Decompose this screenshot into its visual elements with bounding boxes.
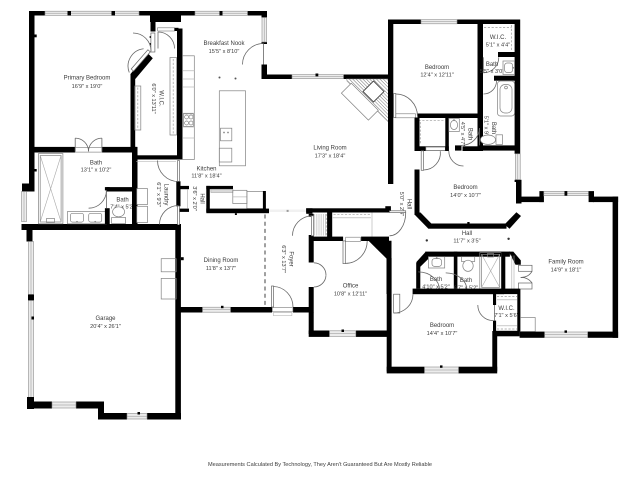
svg-text:Hall: Hall: [199, 193, 205, 203]
svg-text:6'0" x 13'11": 6'0" x 13'11": [150, 83, 156, 113]
svg-text:Living Room: Living Room: [313, 146, 346, 152]
svg-text:7'1" x 5'6": 7'1" x 5'6": [494, 313, 518, 319]
svg-text:Bedroom: Bedroom: [430, 323, 454, 329]
svg-text:14'4" x 10'7": 14'4" x 10'7": [427, 331, 458, 337]
svg-text:5'5" x 3'0": 5'5" x 3'0": [480, 69, 504, 75]
svg-text:Foyer: Foyer: [288, 251, 294, 266]
svg-text:Hall: Hall: [405, 199, 411, 209]
svg-text:4'5" x 4'7": 4'5" x 4'7": [459, 122, 465, 146]
svg-text:10'8" x 12'11": 10'8" x 12'11": [334, 292, 367, 298]
svg-text:14'9" x 18'1": 14'9" x 18'1": [551, 268, 582, 274]
svg-text:Measurements Calculated By Tec: Measurements Calculated By Technology, T…: [208, 462, 432, 468]
svg-text:Bath: Bath: [116, 198, 128, 204]
svg-text:Primary Bedroom: Primary Bedroom: [64, 76, 111, 82]
svg-text:14'0" x 10'7": 14'0" x 10'7": [450, 193, 481, 199]
svg-text:16'9" x 19'0": 16'9" x 19'0": [72, 84, 103, 90]
svg-text:Bath: Bath: [486, 62, 498, 68]
svg-text:W.I.C.: W.I.C.: [490, 35, 507, 41]
svg-text:Bath: Bath: [90, 161, 102, 167]
svg-text:Bedroom: Bedroom: [453, 185, 477, 191]
svg-text:Kitchen: Kitchen: [196, 167, 216, 173]
svg-text:Bath: Bath: [490, 122, 496, 134]
svg-text:Garage: Garage: [95, 316, 116, 322]
svg-text:W.I.C.: W.I.C.: [158, 90, 164, 107]
svg-text:Hall: Hall: [462, 231, 472, 237]
svg-text:6'3" x 13'7": 6'3" x 13'7": [280, 245, 286, 273]
svg-text:Office: Office: [343, 284, 359, 290]
svg-text:Breakfast Nook: Breakfast Nook: [203, 41, 245, 47]
svg-text:20'4" x 26'1": 20'4" x 26'1": [90, 324, 121, 330]
svg-text:3'6" x 2'0": 3'6" x 2'0": [191, 186, 197, 210]
svg-text:Bedroom: Bedroom: [425, 65, 449, 71]
svg-text:6'1" x 9'3": 6'1" x 9'3": [155, 182, 161, 206]
svg-text:Laundry: Laundry: [162, 184, 168, 206]
svg-text:15'5" x 8'10": 15'5" x 8'10": [209, 49, 240, 55]
svg-text:11'8" x 18'4": 11'8" x 18'4": [191, 174, 221, 180]
svg-text:11'7" x 3'5": 11'7" x 3'5": [453, 239, 480, 245]
svg-text:W.I.C.: W.I.C.: [498, 306, 515, 312]
svg-text:12'4" x 12'11": 12'4" x 12'11": [420, 73, 453, 79]
svg-text:Dining Room: Dining Room: [204, 258, 239, 264]
svg-text:5'1" x 4'4": 5'1" x 4'4": [486, 43, 510, 49]
svg-text:11'8" x 13'7": 11'8" x 13'7": [206, 266, 236, 272]
svg-text:Family Room: Family Room: [548, 260, 583, 266]
svg-text:Bath: Bath: [467, 128, 473, 140]
svg-text:13'1" x 10'2": 13'1" x 10'2": [81, 168, 112, 174]
svg-text:17'3" x 18'4": 17'3" x 18'4": [315, 154, 346, 160]
